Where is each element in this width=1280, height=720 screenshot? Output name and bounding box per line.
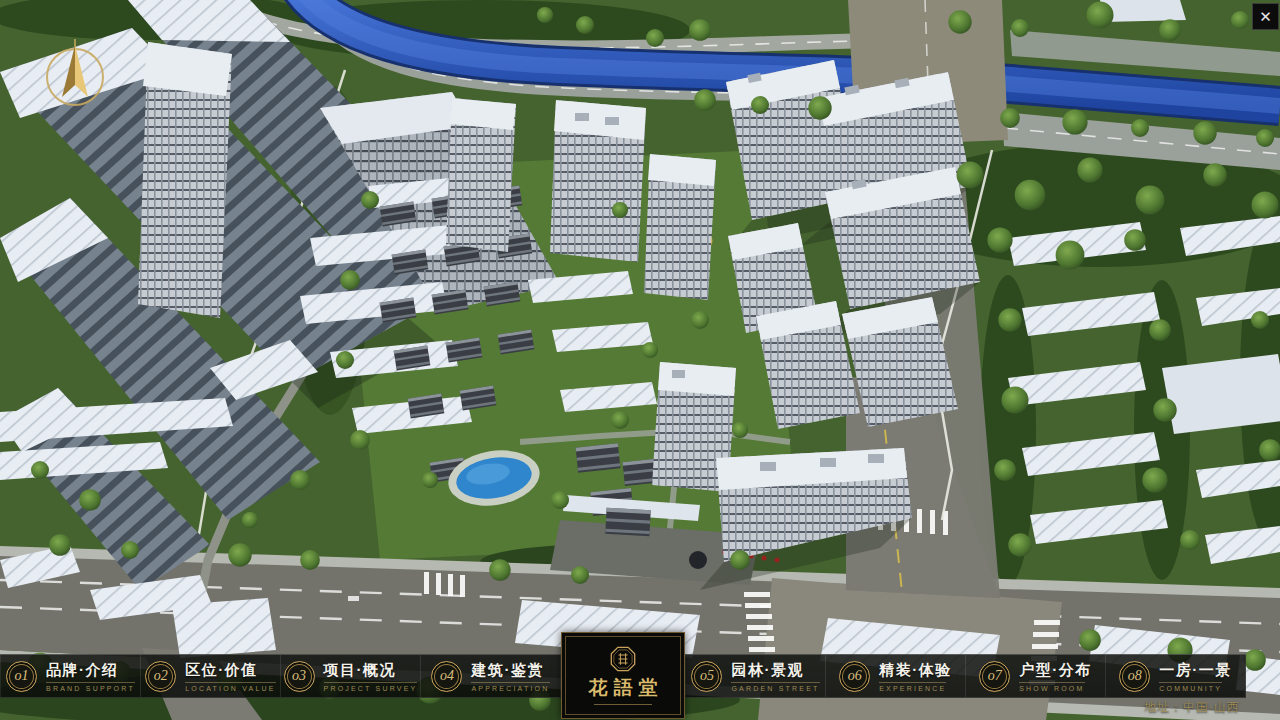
nav-number-badge: o8 — [1119, 661, 1150, 692]
nav-number: o2 — [154, 668, 168, 684]
nav-number-badge: o2 — [145, 661, 176, 692]
address-text: 地址：中国·山西 — [1144, 699, 1240, 716]
nav-label-en: APPRECIATION — [471, 682, 549, 692]
nav-item-location-value[interactable]: o2 区位·价值LOCATION VALUE — [141, 655, 281, 697]
brand-subtitle-rule — [594, 704, 652, 705]
nav-number: o1 — [15, 668, 29, 684]
nav-label-en: BRAND SUPPORT — [46, 682, 135, 692]
bottom-navigation-bar: o1 品牌·介绍BRAND SUPPORT o2 区位·价值LOCATION V… — [0, 654, 1246, 698]
nav-item-architecture[interactable]: o4 建筑·鉴赏APPRECIATION — [421, 655, 561, 697]
nav-label-zh: 精装·体验 — [879, 661, 952, 680]
nav-number-badge: o7 — [979, 661, 1010, 692]
nav-item-interior-experience[interactable]: o6 精装·体验EXPERIENCE — [826, 655, 966, 697]
brand-title: 花語堂 — [583, 675, 664, 701]
nav-label-en: PROJECT SURVEY — [324, 682, 418, 692]
nav-number-badge: o4 — [431, 661, 462, 692]
nav-number: o4 — [440, 668, 454, 684]
nav-number-badge: o1 — [6, 661, 37, 692]
brand-logo-panel[interactable]: 花語堂 — [561, 632, 685, 719]
nav-number-badge: o5 — [691, 661, 722, 692]
nav-label-en: SHOW ROOM — [1019, 682, 1084, 692]
masterplan-3d-view[interactable] — [0, 0, 1280, 720]
nav-item-project-overview[interactable]: o3 项目·概况PROJECT SURVEY — [281, 655, 421, 697]
nav-label-en: GARDEN STREET — [731, 682, 819, 692]
nav-item-landscape[interactable]: o5 园林·景观GARDEN STREET — [685, 655, 826, 697]
nav-group-left: o1 品牌·介绍BRAND SUPPORT o2 区位·价值LOCATION V… — [0, 655, 561, 697]
nav-item-floorplan-distribution[interactable]: o7 户型·分布SHOW ROOM — [966, 655, 1106, 697]
nav-label-zh: 园林·景观 — [731, 661, 804, 680]
nav-number: o7 — [988, 668, 1002, 684]
nav-number-badge: o3 — [284, 661, 315, 692]
octagonal-seal-icon — [610, 646, 636, 672]
nav-number: o8 — [1128, 668, 1142, 684]
brand-logo-slot: 花語堂 — [561, 655, 685, 697]
nav-label-en: COMMUNITY — [1159, 682, 1222, 692]
presentation-viewport: ✕ o1 品牌·介绍BRAND SUPPORT o2 区位·价值LOCATION… — [0, 0, 1280, 720]
nav-label-zh: 户型·分布 — [1019, 661, 1092, 680]
nav-item-brand-intro[interactable]: o1 品牌·介绍BRAND SUPPORT — [0, 655, 141, 697]
close-button[interactable]: ✕ — [1252, 3, 1279, 30]
nav-label-zh: 建筑·鉴赏 — [471, 661, 544, 680]
nav-number-badge: o6 — [839, 661, 870, 692]
nav-label-zh: 一房·一景 — [1159, 661, 1232, 680]
nav-group-right: o5 园林·景观GARDEN STREET o6 精装·体验EXPERIENCE… — [685, 655, 1246, 697]
nav-number: o6 — [848, 668, 862, 684]
nav-label-en: LOCATION VALUE — [185, 682, 275, 692]
nav-label-zh: 项目·概况 — [324, 661, 397, 680]
nav-label-zh: 品牌·介绍 — [46, 661, 119, 680]
nav-label-zh: 区位·价值 — [185, 661, 258, 680]
nav-item-one-room-one-view[interactable]: o8 一房·一景COMMUNITY — [1106, 655, 1246, 697]
nav-number: o3 — [292, 668, 306, 684]
nav-label-en: EXPERIENCE — [879, 682, 946, 692]
nav-number: o5 — [700, 668, 714, 684]
